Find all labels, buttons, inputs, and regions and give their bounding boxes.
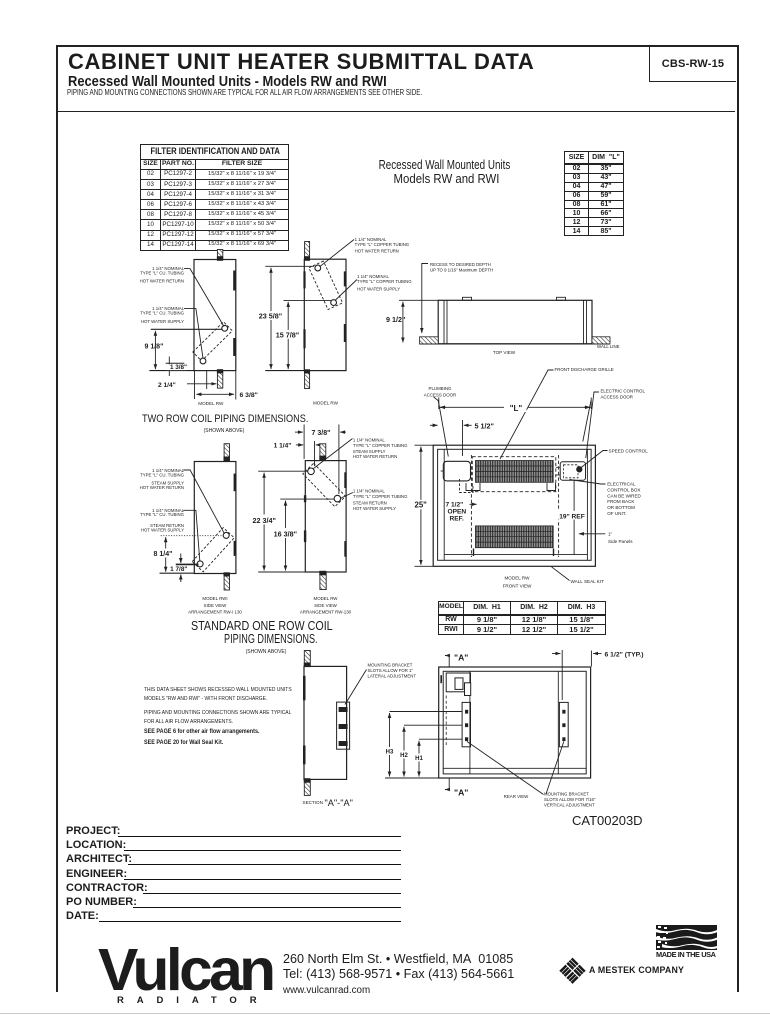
svg-text:FROM BACK: FROM BACK [607,499,635,504]
svg-text:HOT WATER RETURN: HOT WATER RETURN [355,249,399,254]
svg-text:HOT WATER SUPPLY: HOT WATER SUPPLY [141,527,184,532]
svg-text:"A"-"A": "A"-"A" [325,798,353,808]
svg-text:ELECTRICAL: ELECTRICAL [607,482,636,487]
svg-text:MOUNTING BRACKET: MOUNTING BRACKET [368,662,413,667]
svg-text:16 3/8": 16 3/8" [274,529,297,538]
svg-text:SLOTS ALLOW FOR 1": SLOTS ALLOW FOR 1" [368,668,414,673]
svg-text:SPEED CONTROL: SPEED CONTROL [609,448,649,453]
svg-text:1 1/4" NOMINAL: 1 1/4" NOMINAL [353,489,385,494]
svg-text:H1: H1 [415,756,423,762]
svg-text:REAR VIEW: REAR VIEW [504,794,529,799]
svg-text:OF UNIT.: OF UNIT. [607,511,626,516]
svg-text:8 1/4": 8 1/4" [154,551,173,558]
svg-text:"A": "A" [454,788,468,798]
svg-text:MOUNTING BRACKET: MOUNTING BRACKET [544,792,589,797]
svg-text:CAN BE WIRED: CAN BE WIRED [607,493,641,498]
svg-text:1 1/4" NOMINAL: 1 1/4" NOMINAL [353,438,385,443]
svg-text:UP TO 9 1/16" Maximum DEPTH: UP TO 9 1/16" Maximum DEPTH [430,267,493,272]
svg-text:HOT WATER RETURN: HOT WATER RETURN [140,485,184,490]
svg-text:OR BOTTOM: OR BOTTOM [607,505,635,510]
svg-text:REF.: REF. [450,516,464,523]
svg-text:WALL SEAL KIT: WALL SEAL KIT [571,579,605,584]
svg-text:STEAM RETURN: STEAM RETURN [353,501,387,506]
svg-text:23 5/8": 23 5/8" [259,312,282,321]
svg-text:SIDE VIEW: SIDE VIEW [204,603,228,608]
svg-text:RECESS TO DESIRED DEPTH: RECESS TO DESIRED DEPTH [430,262,491,267]
svg-text:TYPE "L" COPPER TUBING: TYPE "L" COPPER TUBING [355,242,410,247]
svg-text:MODEL RW: MODEL RW [504,576,530,581]
svg-text:TYPE "L" CU. TUBING: TYPE "L" CU. TUBING [140,512,184,517]
svg-text:H3: H3 [386,750,394,756]
svg-text:"A": "A" [454,653,468,663]
svg-text:PLUMBING: PLUMBING [429,386,453,391]
svg-text:CONTROL BOX: CONTROL BOX [607,487,640,492]
svg-text:TYPE "L" CU. TUBING: TYPE "L" CU. TUBING [140,311,184,316]
svg-text:19" REF: 19" REF [559,513,584,520]
svg-text:SLOTS ALLOW FOR 7/16": SLOTS ALLOW FOR 7/16" [544,797,596,802]
svg-text:HOT WATER SUPPLY: HOT WATER SUPPLY [141,319,184,324]
svg-text:ARRANGEMENT RW-130: ARRANGEMENT RW-130 [300,610,352,615]
svg-text:SECTION: SECTION [303,800,323,805]
svg-text:2 1/4": 2 1/4" [158,382,176,389]
svg-text:1 7/8": 1 7/8" [170,566,187,573]
svg-text:1 3/8": 1 3/8" [170,364,187,371]
svg-text:5 1/2": 5 1/2" [475,421,494,430]
svg-text:Side Panels: Side Panels [608,539,633,544]
svg-text:WALL LINE: WALL LINE [597,344,620,349]
svg-text:TYPE "L" COPPER TUBING: TYPE "L" COPPER TUBING [353,494,408,499]
svg-text:HOT WATER RETURN: HOT WATER RETURN [140,278,184,283]
svg-text:6 3/8": 6 3/8" [240,392,258,399]
svg-text:HOT WATER RETURN: HOT WATER RETURN [353,454,397,459]
svg-text:SIDE VIEW: SIDE VIEW [314,603,338,608]
svg-text:H2: H2 [400,753,408,759]
svg-text:TYPE "L" CU. TUBING: TYPE "L" CU. TUBING [140,472,184,477]
svg-text:ACCESS DOOR: ACCESS DOOR [424,392,456,397]
svg-text:MODEL RWI: MODEL RWI [202,596,227,601]
svg-text:ELECTRIC CONTROL: ELECTRIC CONTROL [601,388,646,393]
svg-text:HOT WATER SUPPLY: HOT WATER SUPPLY [353,506,396,511]
svg-text:15 7/8": 15 7/8" [276,330,299,339]
svg-text:OPEN: OPEN [448,509,467,516]
svg-text:MODEL RW: MODEL RW [313,400,339,405]
svg-text:FRONT VIEW: FRONT VIEW [503,584,532,589]
svg-text:TYPE "L" COPPER TUBING: TYPE "L" COPPER TUBING [357,279,412,284]
svg-text:"L": "L" [510,404,523,413]
svg-text:22 3/4": 22 3/4" [252,516,275,525]
svg-text:9 1/2": 9 1/2" [386,315,405,324]
svg-text:1 1/4": 1 1/4" [274,442,292,449]
svg-text:VERTICAL ADJUSTMENT: VERTICAL ADJUSTMENT [544,803,595,808]
svg-text:LATERAL ADJUSTMENT: LATERAL ADJUSTMENT [368,674,417,679]
svg-text:HOT WATER SUPPLY: HOT WATER SUPPLY [357,286,400,291]
svg-text:6 1/2" (TYP.): 6 1/2" (TYP.) [605,651,644,658]
svg-text:TOP VIEW: TOP VIEW [493,350,516,355]
svg-text:7 1/2": 7 1/2" [446,502,464,509]
svg-text:1": 1" [608,532,613,537]
svg-text:FRONT DISCHARGE GRILLE: FRONT DISCHARGE GRILLE [555,367,614,372]
svg-text:MODEL RW: MODEL RW [198,401,224,406]
svg-text:7 3/8": 7 3/8" [312,430,331,437]
svg-text:ACCESS DOOR: ACCESS DOOR [601,395,633,400]
svg-text:9 1/8": 9 1/8" [145,344,164,351]
svg-text:MODEL RW: MODEL RW [314,596,339,601]
svg-text:TYPE "L" COPPER TUBING: TYPE "L" COPPER TUBING [353,443,408,448]
svg-text:25": 25" [415,501,428,510]
svg-text:ARRANGEMENT RW-I 130: ARRANGEMENT RW-I 130 [188,610,242,615]
svg-text:TYPE "L" CU. TUBING: TYPE "L" CU. TUBING [140,271,184,276]
